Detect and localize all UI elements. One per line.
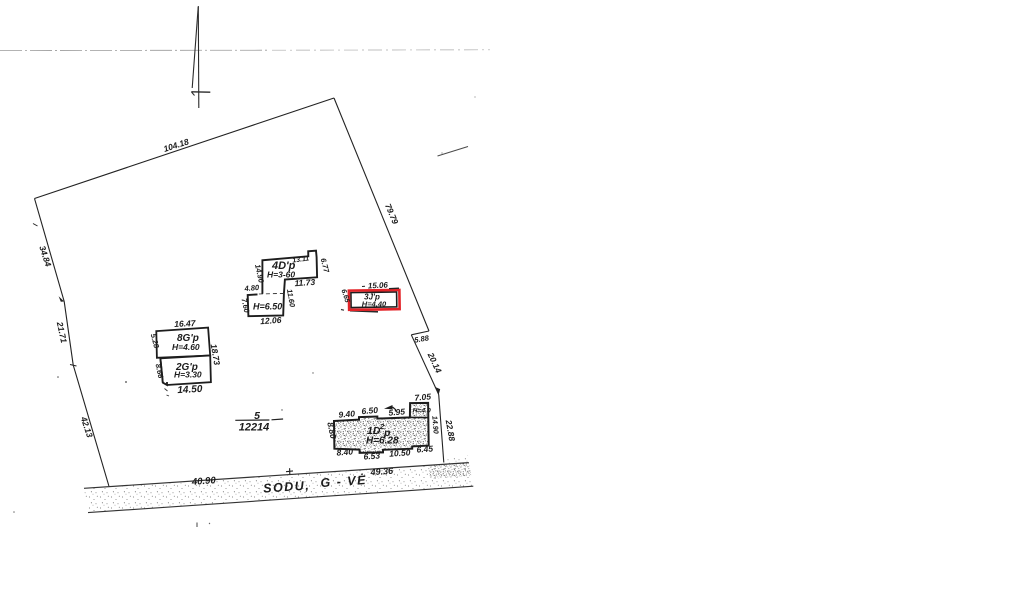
svg-text:7.05: 7.05 xyxy=(414,391,432,402)
svg-text:11.73: 11.73 xyxy=(294,277,316,288)
svg-text:H=3.30: H=3.30 xyxy=(174,370,202,380)
svg-text:H=4.0: H=4.0 xyxy=(413,408,432,415)
svg-text:H=4.60: H=4.60 xyxy=(172,342,200,352)
svg-text:16.47: 16.47 xyxy=(174,318,197,329)
svg-text:5.95: 5.95 xyxy=(388,406,406,417)
svg-text:6.53: 6.53 xyxy=(363,450,380,461)
svg-text:H=6.50: H=6.50 xyxy=(253,302,282,312)
svg-text:4.80: 4.80 xyxy=(243,283,260,293)
svg-text:12.06: 12.06 xyxy=(260,315,282,326)
svg-text:9.40: 9.40 xyxy=(338,408,356,419)
svg-text:6.50: 6.50 xyxy=(361,405,379,416)
svg-text:H=3-60: H=3-60 xyxy=(267,270,295,280)
svg-text:8.40: 8.40 xyxy=(336,446,353,457)
svg-text:12214: 12214 xyxy=(239,422,270,434)
svg-text:H=6.28: H=6.28 xyxy=(366,436,399,447)
svg-text:H=4.40: H=4.40 xyxy=(362,300,387,309)
svg-text:10.50: 10.50 xyxy=(389,447,411,458)
svg-text:40.90: 40.90 xyxy=(191,475,217,488)
svg-text:14.90: 14.90 xyxy=(430,415,441,434)
svg-text:15.06: 15.06 xyxy=(368,280,389,290)
svg-text:14.50: 14.50 xyxy=(177,384,203,396)
svg-text:6.45: 6.45 xyxy=(416,443,433,454)
svg-text:49.36: 49.36 xyxy=(369,466,394,478)
